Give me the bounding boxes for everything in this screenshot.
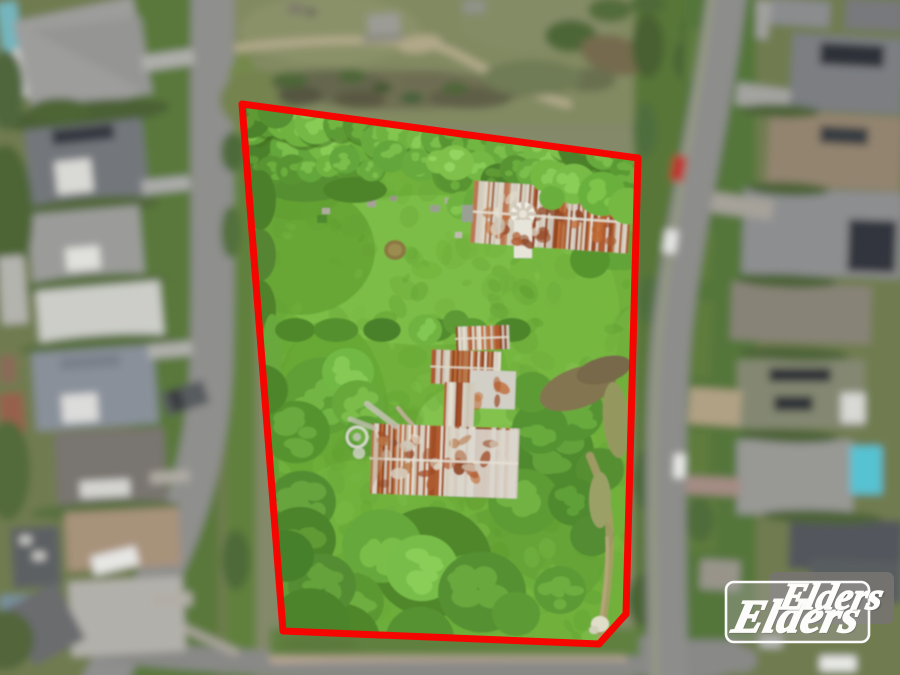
svg-text:Elders: Elders — [775, 577, 888, 618]
